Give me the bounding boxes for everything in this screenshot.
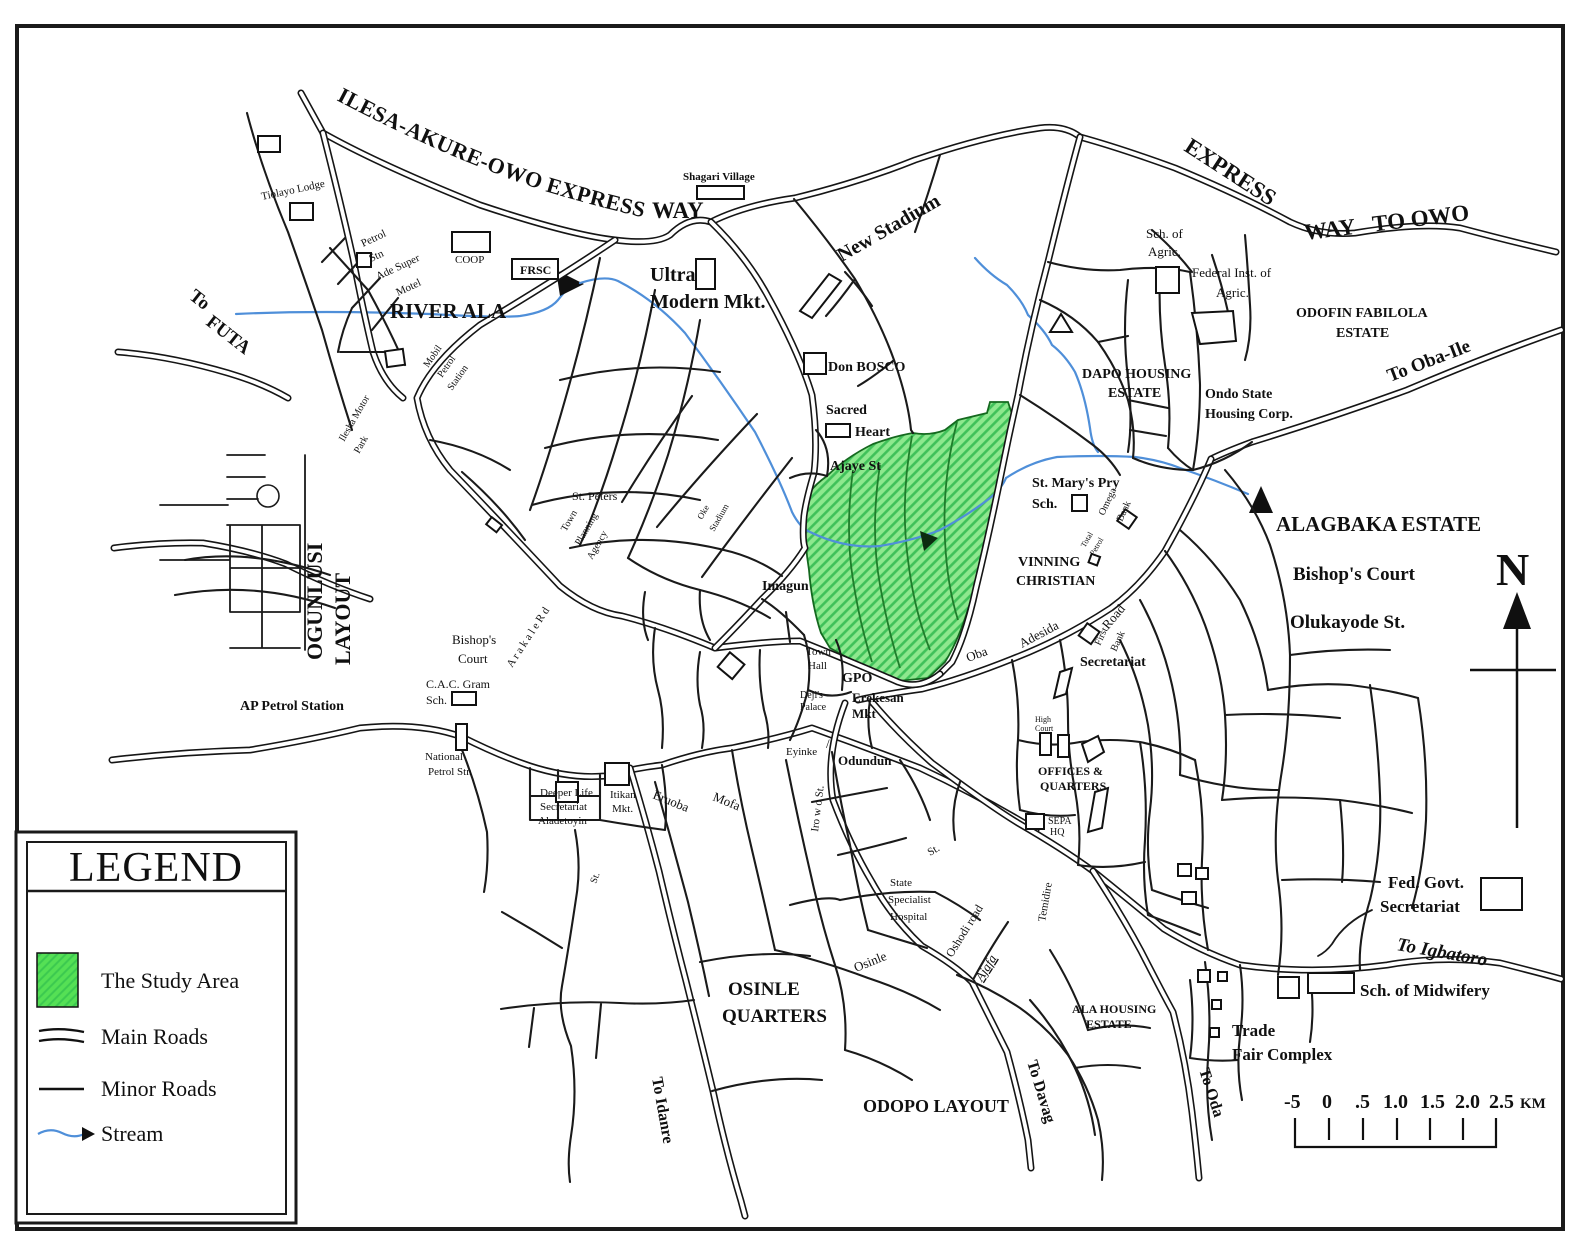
- svg-text:Town: Town: [806, 646, 831, 658]
- svg-text:Eyinke: Eyinke: [786, 746, 817, 758]
- svg-text:LEGEND: LEGEND: [69, 845, 243, 891]
- svg-text:Modern Mkt.: Modern Mkt.: [650, 291, 766, 313]
- svg-text:Sch. of: Sch. of: [1146, 226, 1184, 241]
- svg-text:Palace: Palace: [800, 702, 827, 713]
- svg-text:Sch. of Midwifery: Sch. of Midwifery: [1360, 981, 1490, 1000]
- svg-text:COOP: COOP: [455, 254, 484, 266]
- svg-text:1.5: 1.5: [1420, 1091, 1445, 1113]
- svg-text:Hospital: Hospital: [890, 911, 927, 923]
- svg-text:Mkt.: Mkt.: [612, 803, 633, 815]
- svg-text:DAPO HOUSING: DAPO HOUSING: [1082, 367, 1191, 382]
- svg-text:Imagun: Imagun: [762, 579, 809, 594]
- svg-text:Bishop's Court: Bishop's Court: [1293, 564, 1416, 585]
- svg-text:Court: Court: [458, 651, 488, 666]
- svg-text:Minor Roads: Minor Roads: [101, 1076, 217, 1101]
- svg-text:Specialist: Specialist: [888, 894, 931, 906]
- svg-text:Federal Inst. of: Federal Inst. of: [1192, 265, 1272, 280]
- svg-text:QUARTERS: QUARTERS: [1040, 779, 1107, 793]
- svg-text:KM: KM: [1520, 1096, 1546, 1112]
- svg-text:N: N: [1496, 544, 1529, 595]
- svg-text:Erekesan: Erekesan: [852, 690, 905, 705]
- svg-text:Mkt: Mkt: [852, 706, 877, 721]
- svg-text:Odundun: Odundun: [838, 753, 892, 768]
- svg-text:GPO: GPO: [842, 671, 872, 686]
- svg-text:ODOFIN FABILOLA: ODOFIN FABILOLA: [1296, 306, 1428, 321]
- svg-text:ALAGBAKA ESTATE: ALAGBAKA ESTATE: [1276, 512, 1481, 536]
- svg-text:.5: .5: [1355, 1091, 1370, 1113]
- svg-text:WAY: WAY: [652, 198, 704, 223]
- svg-text:Deji's: Deji's: [800, 690, 823, 701]
- svg-text:FRSC: FRSC: [520, 263, 551, 277]
- svg-text:Agric.: Agric.: [1216, 285, 1249, 300]
- svg-text:Main Roads: Main Roads: [101, 1024, 208, 1049]
- svg-text:QUARTERS: QUARTERS: [722, 1006, 827, 1027]
- svg-text:Petrol Stn: Petrol Stn: [428, 766, 472, 778]
- svg-text:OSINLE: OSINLE: [728, 979, 800, 1000]
- svg-text:St. Peters: St. Peters: [572, 489, 618, 503]
- svg-text:Sacred: Sacred: [826, 403, 867, 418]
- svg-text:-5: -5: [1284, 1091, 1301, 1113]
- svg-text:AP Petrol Station: AP Petrol Station: [240, 699, 344, 714]
- svg-text:ODOPO LAYOUT: ODOPO LAYOUT: [863, 1096, 1009, 1116]
- svg-text:2.0: 2.0: [1455, 1091, 1480, 1113]
- svg-text:Court: Court: [1035, 724, 1054, 733]
- svg-text:Secretariat: Secretariat: [540, 801, 587, 813]
- svg-text:Agric.: Agric.: [1148, 244, 1181, 259]
- svg-text:Deeper Life: Deeper Life: [540, 787, 593, 799]
- svg-text:Don BOSCO: Don BOSCO: [828, 360, 906, 375]
- svg-text:Ultra: Ultra: [650, 264, 696, 286]
- svg-text:Trade: Trade: [1232, 1021, 1276, 1040]
- svg-text:Olukayode St.: Olukayode St.: [1290, 612, 1405, 633]
- svg-text:Stream: Stream: [101, 1121, 163, 1146]
- svg-text:1.0: 1.0: [1383, 1091, 1408, 1113]
- svg-text:/: /: [826, 736, 830, 751]
- svg-text:2.5: 2.5: [1489, 1091, 1514, 1113]
- svg-text:Itikan: Itikan: [610, 789, 636, 801]
- svg-text:Bishop's: Bishop's: [452, 632, 496, 647]
- svg-text:Shagari Village: Shagari Village: [683, 171, 755, 183]
- svg-text:High: High: [1035, 715, 1051, 724]
- svg-text:Sch.: Sch.: [1032, 497, 1057, 512]
- svg-text:0: 0: [1322, 1091, 1332, 1113]
- svg-text:ALA HOUSING: ALA HOUSING: [1072, 1002, 1156, 1016]
- svg-text:Sch.: Sch.: [426, 693, 447, 707]
- svg-text:Fed. Govt.: Fed. Govt.: [1388, 873, 1464, 892]
- svg-text:Ajaye St: Ajaye St: [830, 459, 881, 474]
- svg-text:C.A.C. Gram: C.A.C. Gram: [426, 677, 491, 691]
- svg-text:RIVER ALA: RIVER ALA: [390, 299, 507, 323]
- svg-text:State: State: [890, 877, 912, 889]
- svg-text:HQ: HQ: [1050, 827, 1065, 838]
- svg-text:National: National: [425, 751, 463, 763]
- svg-text:Housing Corp.: Housing Corp.: [1205, 407, 1293, 422]
- svg-text:OGUNLUSI: OGUNLUSI: [302, 543, 327, 660]
- svg-text:ESTATE: ESTATE: [1086, 1017, 1132, 1031]
- svg-text:LAYOUT: LAYOUT: [330, 573, 355, 665]
- svg-text:Ondo State: Ondo State: [1205, 387, 1272, 402]
- svg-text:SEPA: SEPA: [1048, 816, 1072, 827]
- svg-text:Secretariat: Secretariat: [1080, 655, 1146, 670]
- svg-text:Hall: Hall: [808, 660, 827, 672]
- svg-text:Aladetoyin: Aladetoyin: [538, 815, 587, 827]
- svg-text:Fair Complex: Fair Complex: [1232, 1045, 1333, 1064]
- svg-text:Secretariat: Secretariat: [1380, 897, 1460, 916]
- svg-text:VINNING: VINNING: [1018, 555, 1080, 570]
- svg-text:CHRISTIAN: CHRISTIAN: [1016, 574, 1095, 589]
- svg-text:The Study Area: The Study Area: [101, 968, 239, 993]
- svg-text:OFFICES &: OFFICES &: [1038, 764, 1103, 778]
- svg-text:Heart: Heart: [855, 425, 890, 440]
- svg-text:ESTATE: ESTATE: [1336, 326, 1389, 341]
- svg-text:ESTATE: ESTATE: [1108, 386, 1161, 401]
- svg-text:St. Mary's Pry: St. Mary's Pry: [1032, 476, 1119, 491]
